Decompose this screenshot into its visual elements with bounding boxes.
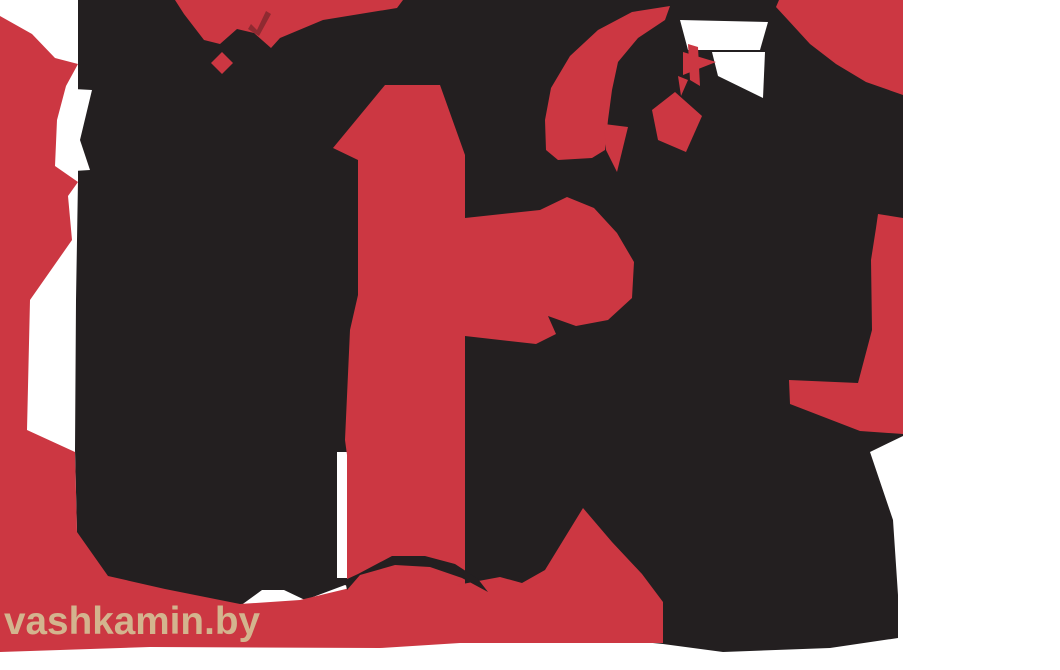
artwork-canvas: vashkamin.by <box>0 0 1060 670</box>
silhouette-graphic: vashkamin.by <box>0 0 1060 670</box>
watermark-text: vashkamin.by <box>4 600 260 643</box>
column-white-sliver <box>337 452 348 578</box>
flower-petal-top <box>680 20 768 50</box>
